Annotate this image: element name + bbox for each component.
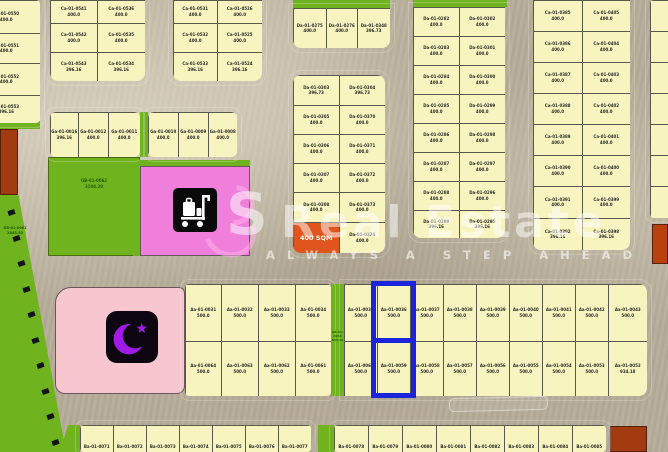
plot: Aa-01-0034500.0 (295, 284, 331, 342)
plot: Da-01-0306400.0 (293, 134, 340, 164)
plot: Da-01-0303396.73 (293, 75, 340, 106)
plot: Ca-01-0524396.16 (217, 52, 262, 81)
green-area-main-area: 3104.20 (48, 184, 140, 190)
road-name-plate (449, 396, 548, 413)
plot: Ba-01-0083 (504, 425, 539, 452)
plot-block-row-g1: Ga-01-0016396.16Ga-01-0012400.0Ga-01-001… (50, 112, 140, 157)
plot: Ca-01-0550400.0 (0, 0, 40, 34)
plot-block-right-center: Da-01-0282400.0Da-01-0302400.0Da-01-0283… (413, 7, 505, 238)
plot: Ca-01-0386400.0 (533, 31, 583, 63)
plot: Da-01-0286400.0 (413, 123, 460, 153)
green-area-main (48, 157, 140, 256)
plot: Ca-01-0542400.0 (50, 23, 98, 53)
plot: Ba-01-0082 (470, 425, 505, 452)
plot: Aa-01-0062500.0 (258, 341, 296, 396)
plot: Ca-01-0415400.0 (650, 93, 668, 125)
plot: Ca-01-0389400.0 (533, 124, 583, 156)
plot: Ca-01-0541400.0 (50, 0, 98, 24)
plot: Aa-01-0052934.18 (608, 341, 647, 396)
selected-plots-highlight (371, 281, 416, 398)
site-plan-map: GB-01-0061 2845.50 GB-01-0062 3104.20 (0, 0, 668, 452)
plot: Ca-01-0400400.0 (582, 155, 630, 187)
plot: Ca-01-0551400.0 (0, 33, 40, 64)
highlighted-plot: 400 SQM (293, 222, 340, 253)
plot-block-bottom-left: Ba-01-0071Ba-01-0072Ba-01-0073Ba-01-0074… (80, 425, 311, 452)
plot: Da-01-0295396.16 (459, 210, 505, 238)
orange-plot-right-edge (652, 224, 668, 264)
plot: Da-01-0289396.16 (413, 210, 460, 238)
plot: Ca-01-0553396.16 (0, 95, 40, 123)
plot: Da-01-0301400.0 (459, 36, 505, 66)
plot: Ga-01-0009400.0 (178, 112, 209, 157)
plot-block-right-edge-col: Ca-01-0412400.0Ca-01-0413400.0Ca-01-0414… (650, 0, 668, 218)
plot: Ca-01-0412400.0 (650, 0, 668, 32)
plot: Ca-01-0392396.16 (533, 218, 583, 250)
plot: Aa-01-0056500.0 (476, 341, 510, 396)
plot: Ca-01-0536400.0 (97, 0, 145, 24)
plot: Ca-01-0534396.16 (97, 52, 145, 81)
plot: Ga-01-0011400.0 (108, 112, 140, 157)
green-area-left-label: GB-01-0061 2845.50 (1, 226, 29, 236)
plot: Ca-01-0418400.0 (650, 186, 668, 218)
plot: Ca-01-0413400.0 (650, 31, 668, 63)
plot: Da-01-0300400.0 (459, 65, 505, 95)
green-strip-mid-id: GB-01-0063 (329, 330, 346, 338)
plot: Da-01-0305400.0 (293, 105, 340, 135)
plot: Ba-01-0076 (245, 425, 279, 452)
green-strip-mid-label: GB-01-0063 583.30 (329, 330, 346, 343)
plot: Ca-01-0531400.0 (173, 0, 218, 24)
plot: Aa-01-0055500.0 (509, 341, 543, 396)
plot: Ba-01-0071 (80, 425, 114, 452)
plot: Aa-01-0033500.0 (258, 284, 296, 342)
green-strip-row-g (140, 112, 148, 157)
plot: Da-01-0275400.0 (293, 8, 327, 48)
plot: Aa-01-0042500.0 (575, 284, 609, 342)
plot: Da-01-0299400.0 (459, 94, 505, 124)
plot: Da-01-0282400.0 (413, 7, 460, 37)
plot: Ca-01-0401400.0 (582, 124, 630, 156)
plot-block-bottom-right: Ba-01-0078Ba-01-0079Ba-01-0080Ba-01-0081… (334, 425, 606, 452)
plot: Ba-01-0072 (113, 425, 147, 452)
plot: Ca-01-0391400.0 (533, 186, 583, 219)
plot: Da-01-0298400.0 (459, 123, 505, 153)
plot: Ca-01-0388400.0 (533, 93, 583, 125)
plot: Aa-01-0041500.0 (542, 284, 576, 342)
plot: Ba-01-0075 (212, 425, 246, 452)
plot: Ba-01-0080 (402, 425, 437, 452)
plot: Aa-01-0064500.0 (185, 341, 222, 396)
plot: Aa-01-0043500.0 (608, 284, 647, 342)
plot: Aa-01-0039500.0 (476, 284, 510, 342)
plot: Da-01-0308400.0 (293, 192, 340, 223)
green-strip-bottom (318, 425, 334, 452)
plot: Ca-01-0533396.16 (173, 52, 218, 81)
plot: Aa-01-0053500.0 (575, 341, 609, 396)
plot-block-row-g2: Ga-01-0010400.0Ga-01-0009400.0Ga-01-0008… (148, 112, 237, 157)
plot-block-mid-left: Aa-01-0031500.0Aa-01-0032500.0Aa-01-0033… (185, 284, 331, 396)
plot: Ba-01-0081 (436, 425, 471, 452)
plot: Ba-01-0074 (179, 425, 213, 452)
plot: Ca-01-0390400.0 (533, 155, 583, 187)
plot: Ca-01-0403400.0 (582, 62, 630, 94)
plot: Aa-01-0032500.0 (221, 284, 259, 342)
plot: Da-01-0374400.0 (339, 222, 385, 253)
dark-red-plot-left (0, 129, 18, 195)
luggage-cart-icon (173, 188, 217, 232)
plot: Ca-01-0525400.0 (217, 23, 262, 53)
plot: Da-01-0307400.0 (293, 163, 340, 193)
plot: Ba-01-0078 (334, 425, 369, 452)
plot: Da-01-0284400.0 (413, 65, 460, 95)
plot: Ca-01-0402400.0 (582, 93, 630, 125)
plot: Ga-01-0012400.0 (78, 112, 109, 157)
plot: Ga-01-0016396.16 (50, 112, 79, 157)
plot: Da-01-0276400.0 (326, 8, 358, 48)
plot-block-top-left: Ca-01-0541400.0Ca-01-0536400.0Ca-01-0542… (50, 0, 145, 81)
plot: Aa-01-0038500.0 (443, 284, 477, 342)
plot: Ca-01-0398396.16 (582, 218, 630, 250)
plot-block-top-center-strip: Da-01-0275400.0Da-01-0276400.0Da-01-0348… (293, 8, 390, 48)
plot: Da-01-0296400.0 (459, 181, 505, 211)
plot: Ga-01-0010400.0 (148, 112, 179, 157)
green-strip-top-right (413, 0, 507, 7)
plot: Ca-01-0526400.0 (217, 0, 262, 24)
plot: Ba-01-0077 (278, 425, 311, 452)
green-strip-top-center (293, 0, 390, 8)
plot-block-center: Da-01-0303396.73Da-01-0304396.73Da-01-03… (293, 75, 385, 253)
plot: Da-01-0283400.0 (413, 36, 460, 66)
plot-block-top-center-left: Ca-01-0531400.0Ca-01-0526400.0Ca-01-0532… (173, 0, 262, 81)
plot: Aa-01-0061500.0 (295, 341, 331, 396)
plot: Ca-01-0416400.0 (650, 124, 668, 156)
green-area-main-label: GB-01-0062 3104.20 (48, 178, 140, 189)
plot: Ca-01-0414400.0 (650, 62, 668, 94)
plot: Da-01-0304396.73 (339, 75, 385, 106)
plot: Da-01-0287400.0 (413, 152, 460, 182)
plot-block-right-block: Ca-01-0385400.0Ca-01-0405400.0Ca-01-0386… (533, 0, 630, 250)
plot: Da-01-0371400.0 (339, 134, 385, 164)
plot: Ca-01-0532400.0 (173, 23, 218, 53)
plot: Aa-01-0031500.0 (185, 284, 222, 342)
dark-red-plot-bottom-right (610, 426, 647, 452)
plot: Da-01-0297400.0 (459, 152, 505, 182)
plot: Ca-01-0385400.0 (533, 0, 583, 32)
plot: Ca-01-0399400.0 (582, 186, 630, 219)
plot: Ba-01-0084 (538, 425, 573, 452)
plot: Da-01-0373400.0 (339, 192, 385, 223)
plot: Aa-01-0040500.0 (509, 284, 543, 342)
plot: Ca-01-0404400.0 (582, 31, 630, 63)
plot: Da-01-0372400.0 (339, 163, 385, 193)
plot: Ba-01-0079 (368, 425, 403, 452)
plot: Da-01-0348396.73 (357, 8, 390, 48)
plot: Da-01-0370400.0 (339, 105, 385, 135)
plot: Ca-01-0387400.0 (533, 62, 583, 94)
plot: Ca-01-0405400.0 (582, 0, 630, 32)
plot: Ba-01-0073 (146, 425, 180, 452)
plot: Aa-01-0054500.0 (542, 341, 576, 396)
plot: Ba-01-0085 (572, 425, 606, 452)
plot: Da-01-0285400.0 (413, 94, 460, 124)
green-strip-mid-area: 583.30 (329, 338, 346, 342)
plot: Ca-01-0543396.16 (50, 52, 98, 81)
plot: Aa-01-0063500.0 (221, 341, 259, 396)
plot-block-left-col: Ca-01-0550400.0Ca-01-0551400.0Ca-01-0552… (0, 0, 40, 123)
plot: Da-01-0288400.0 (413, 181, 460, 211)
mosque-crescent-icon (106, 311, 158, 363)
plot: Ca-01-0417400.0 (650, 155, 668, 187)
plot: Ca-01-0535400.0 (97, 23, 145, 53)
plot: Ca-01-0552400.0 (0, 63, 40, 96)
plot: Aa-01-0057500.0 (443, 341, 477, 396)
green-strip-services-left (133, 160, 140, 256)
plot: Ga-01-0008400.0 (208, 112, 237, 157)
plot: Da-01-0302400.0 (459, 7, 505, 37)
